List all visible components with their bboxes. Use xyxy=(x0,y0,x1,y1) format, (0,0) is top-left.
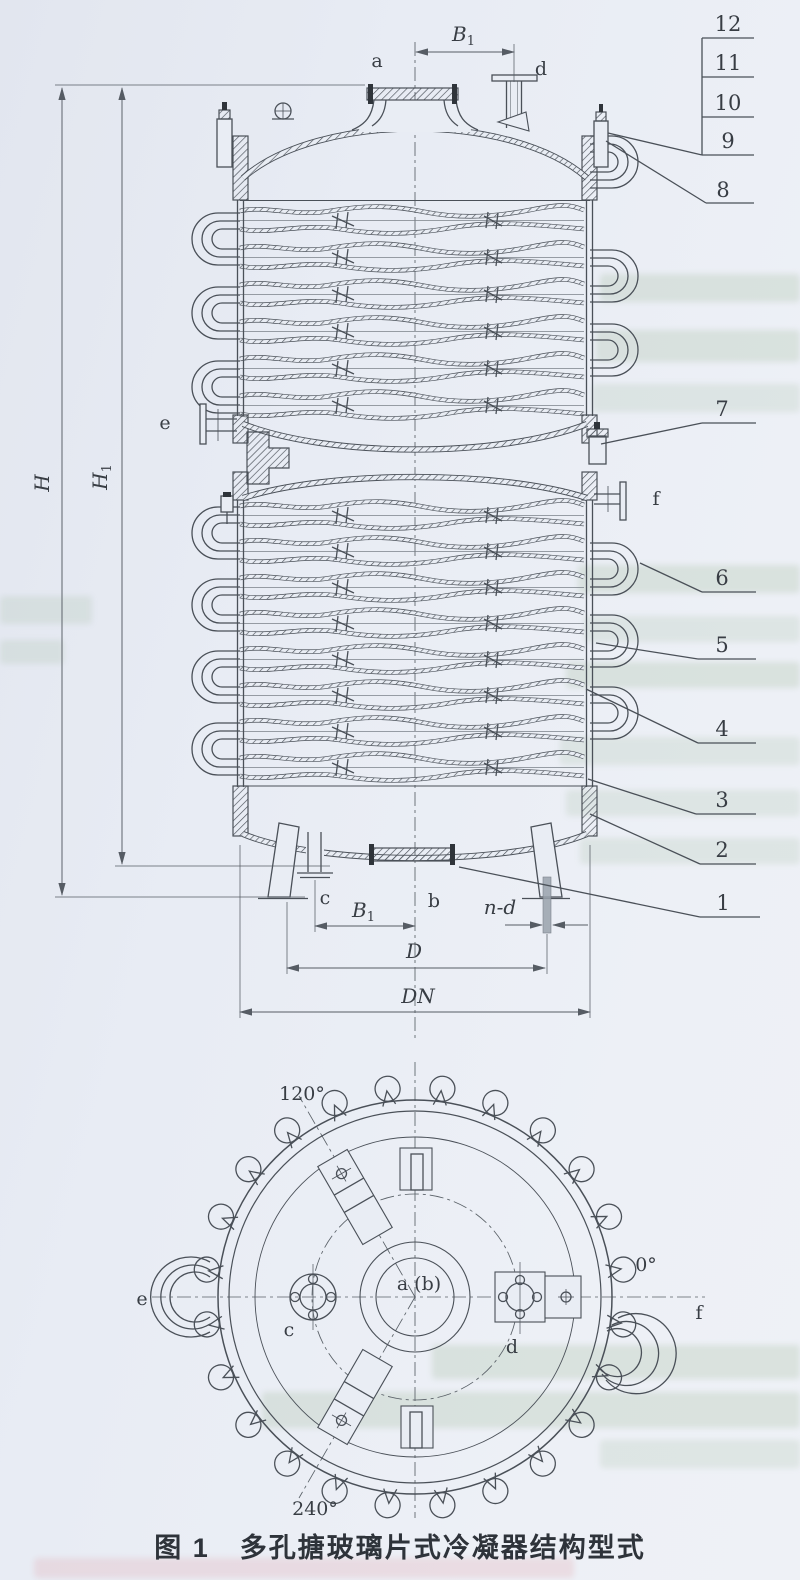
nozzle-d xyxy=(492,75,537,131)
figure-title: 多孔搪玻璃片式冷凝器结构型式 xyxy=(240,1526,646,1565)
plan-view: 120° 0° 240° a (b) c d e f xyxy=(136,1062,705,1520)
nozzle-b-label: b xyxy=(428,890,440,912)
plan-center-label: a (b) xyxy=(397,1273,441,1295)
plan-bracket-bottom xyxy=(401,1406,433,1448)
right-tie-rod xyxy=(594,104,608,167)
dim-b1-top: B1 xyxy=(451,22,475,49)
plan-bracket-top xyxy=(400,1148,432,1190)
callout-4: 4 xyxy=(715,717,728,741)
callout-11: 11 xyxy=(715,51,742,75)
angle-240-label: 240° xyxy=(292,1498,338,1520)
mid-section-joint xyxy=(221,422,608,524)
figure-drawing: B1 H H1 B1 n-d D DN a d e f c b xyxy=(0,0,800,1580)
plan-f-label: f xyxy=(695,1302,704,1324)
angle-0-label: 0° xyxy=(635,1254,657,1276)
callout-6: 6 xyxy=(715,566,728,590)
dim-b1-bottom: B1 xyxy=(351,898,375,925)
callout-8: 8 xyxy=(716,178,729,202)
callout-10: 10 xyxy=(715,91,742,115)
callout-5: 5 xyxy=(715,633,728,657)
nozzle-c-label: c xyxy=(320,887,331,909)
plan-e-label: e xyxy=(136,1288,147,1310)
plan-bracket-upper-left xyxy=(318,1150,392,1245)
callout-9: 9 xyxy=(721,129,734,153)
nozzle-f-label: f xyxy=(652,488,661,510)
nozzle-d-label: d xyxy=(535,58,547,80)
nozzle-b xyxy=(369,844,455,865)
dim-d: D xyxy=(405,939,422,963)
lifting-lug xyxy=(272,103,294,119)
angle-120-label: 120° xyxy=(279,1083,325,1105)
callout-3: 3 xyxy=(715,788,728,812)
lower-plate-stack xyxy=(240,500,584,780)
nozzle-e xyxy=(200,404,237,444)
figure-number: 图 1 xyxy=(154,1526,210,1565)
plan-d-label: d xyxy=(506,1336,518,1358)
plan-c-label: c xyxy=(284,1319,295,1341)
scanned-document-page: B1 H H1 B1 n-d D DN a d e f c b xyxy=(0,0,800,1580)
upper-plate-stack xyxy=(240,205,584,418)
callout-7: 7 xyxy=(715,397,728,421)
plan-flange-d xyxy=(495,1262,581,1334)
left-tie-rod xyxy=(217,102,232,167)
callout-labels: 12 11 10 9 8 7 6 5 4 3 2 1 xyxy=(459,12,760,917)
mid-right-fitting xyxy=(589,436,606,464)
figure-caption: 图 1 多孔搪玻璃片式冷凝器结构型式 xyxy=(0,1526,800,1565)
nozzle-f xyxy=(594,482,626,520)
dim-h: H xyxy=(30,474,54,493)
dim-dn: DN xyxy=(400,984,436,1008)
nozzle-a-label: a xyxy=(371,50,382,72)
callout-12: 12 xyxy=(715,12,742,36)
top-head xyxy=(243,100,587,178)
callout-1: 1 xyxy=(716,891,729,915)
mid-clamp xyxy=(247,432,289,484)
dim-nd: n-d xyxy=(484,895,516,919)
plan-bracket-lower-left xyxy=(318,1350,392,1445)
dim-h1: H1 xyxy=(88,464,115,491)
callout-2: 2 xyxy=(715,838,728,862)
nozzle-e-label: e xyxy=(159,412,170,434)
